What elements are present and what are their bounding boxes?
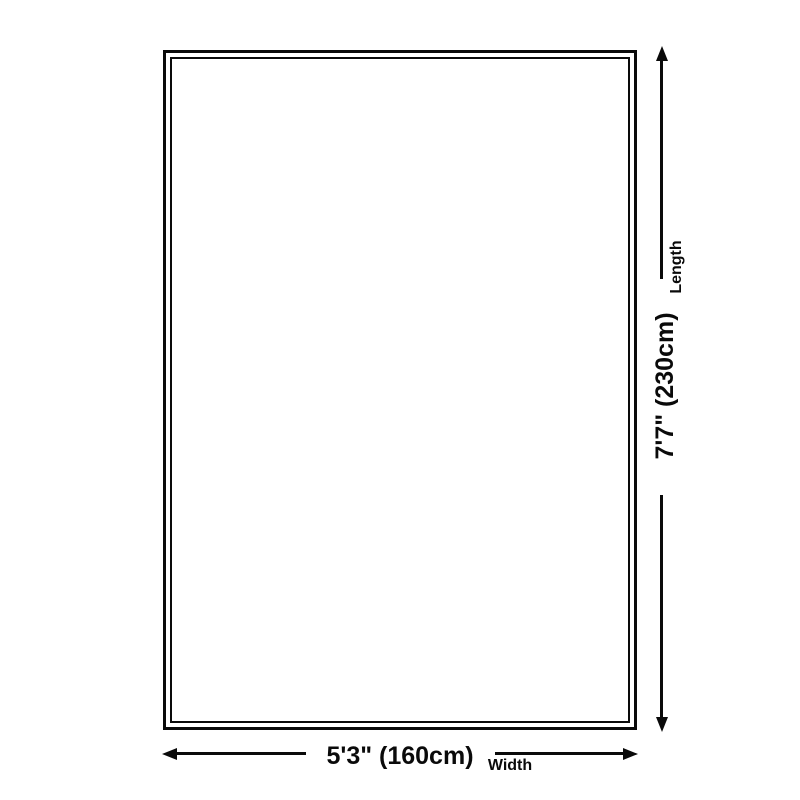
rug-outline-outer-border xyxy=(163,50,637,730)
arrow-down-icon xyxy=(656,717,668,732)
length-dimension-line-bottom xyxy=(660,495,663,723)
rug-outline-inner-border xyxy=(170,57,630,723)
width-dimension-line-left xyxy=(170,752,306,755)
width-dimension-label: Width xyxy=(482,757,538,775)
width-dimension-value: 5'3" (160cm) xyxy=(300,741,500,771)
length-dimension-line-top xyxy=(660,56,663,279)
width-dimension-line-right xyxy=(495,752,629,755)
rug-dimension-diagram: Length 7'7" (230cm) 5'3" (160cm) Width xyxy=(0,0,800,800)
arrow-right-icon xyxy=(623,748,638,760)
length-dimension-value: 7'7" (230cm) xyxy=(650,276,680,496)
